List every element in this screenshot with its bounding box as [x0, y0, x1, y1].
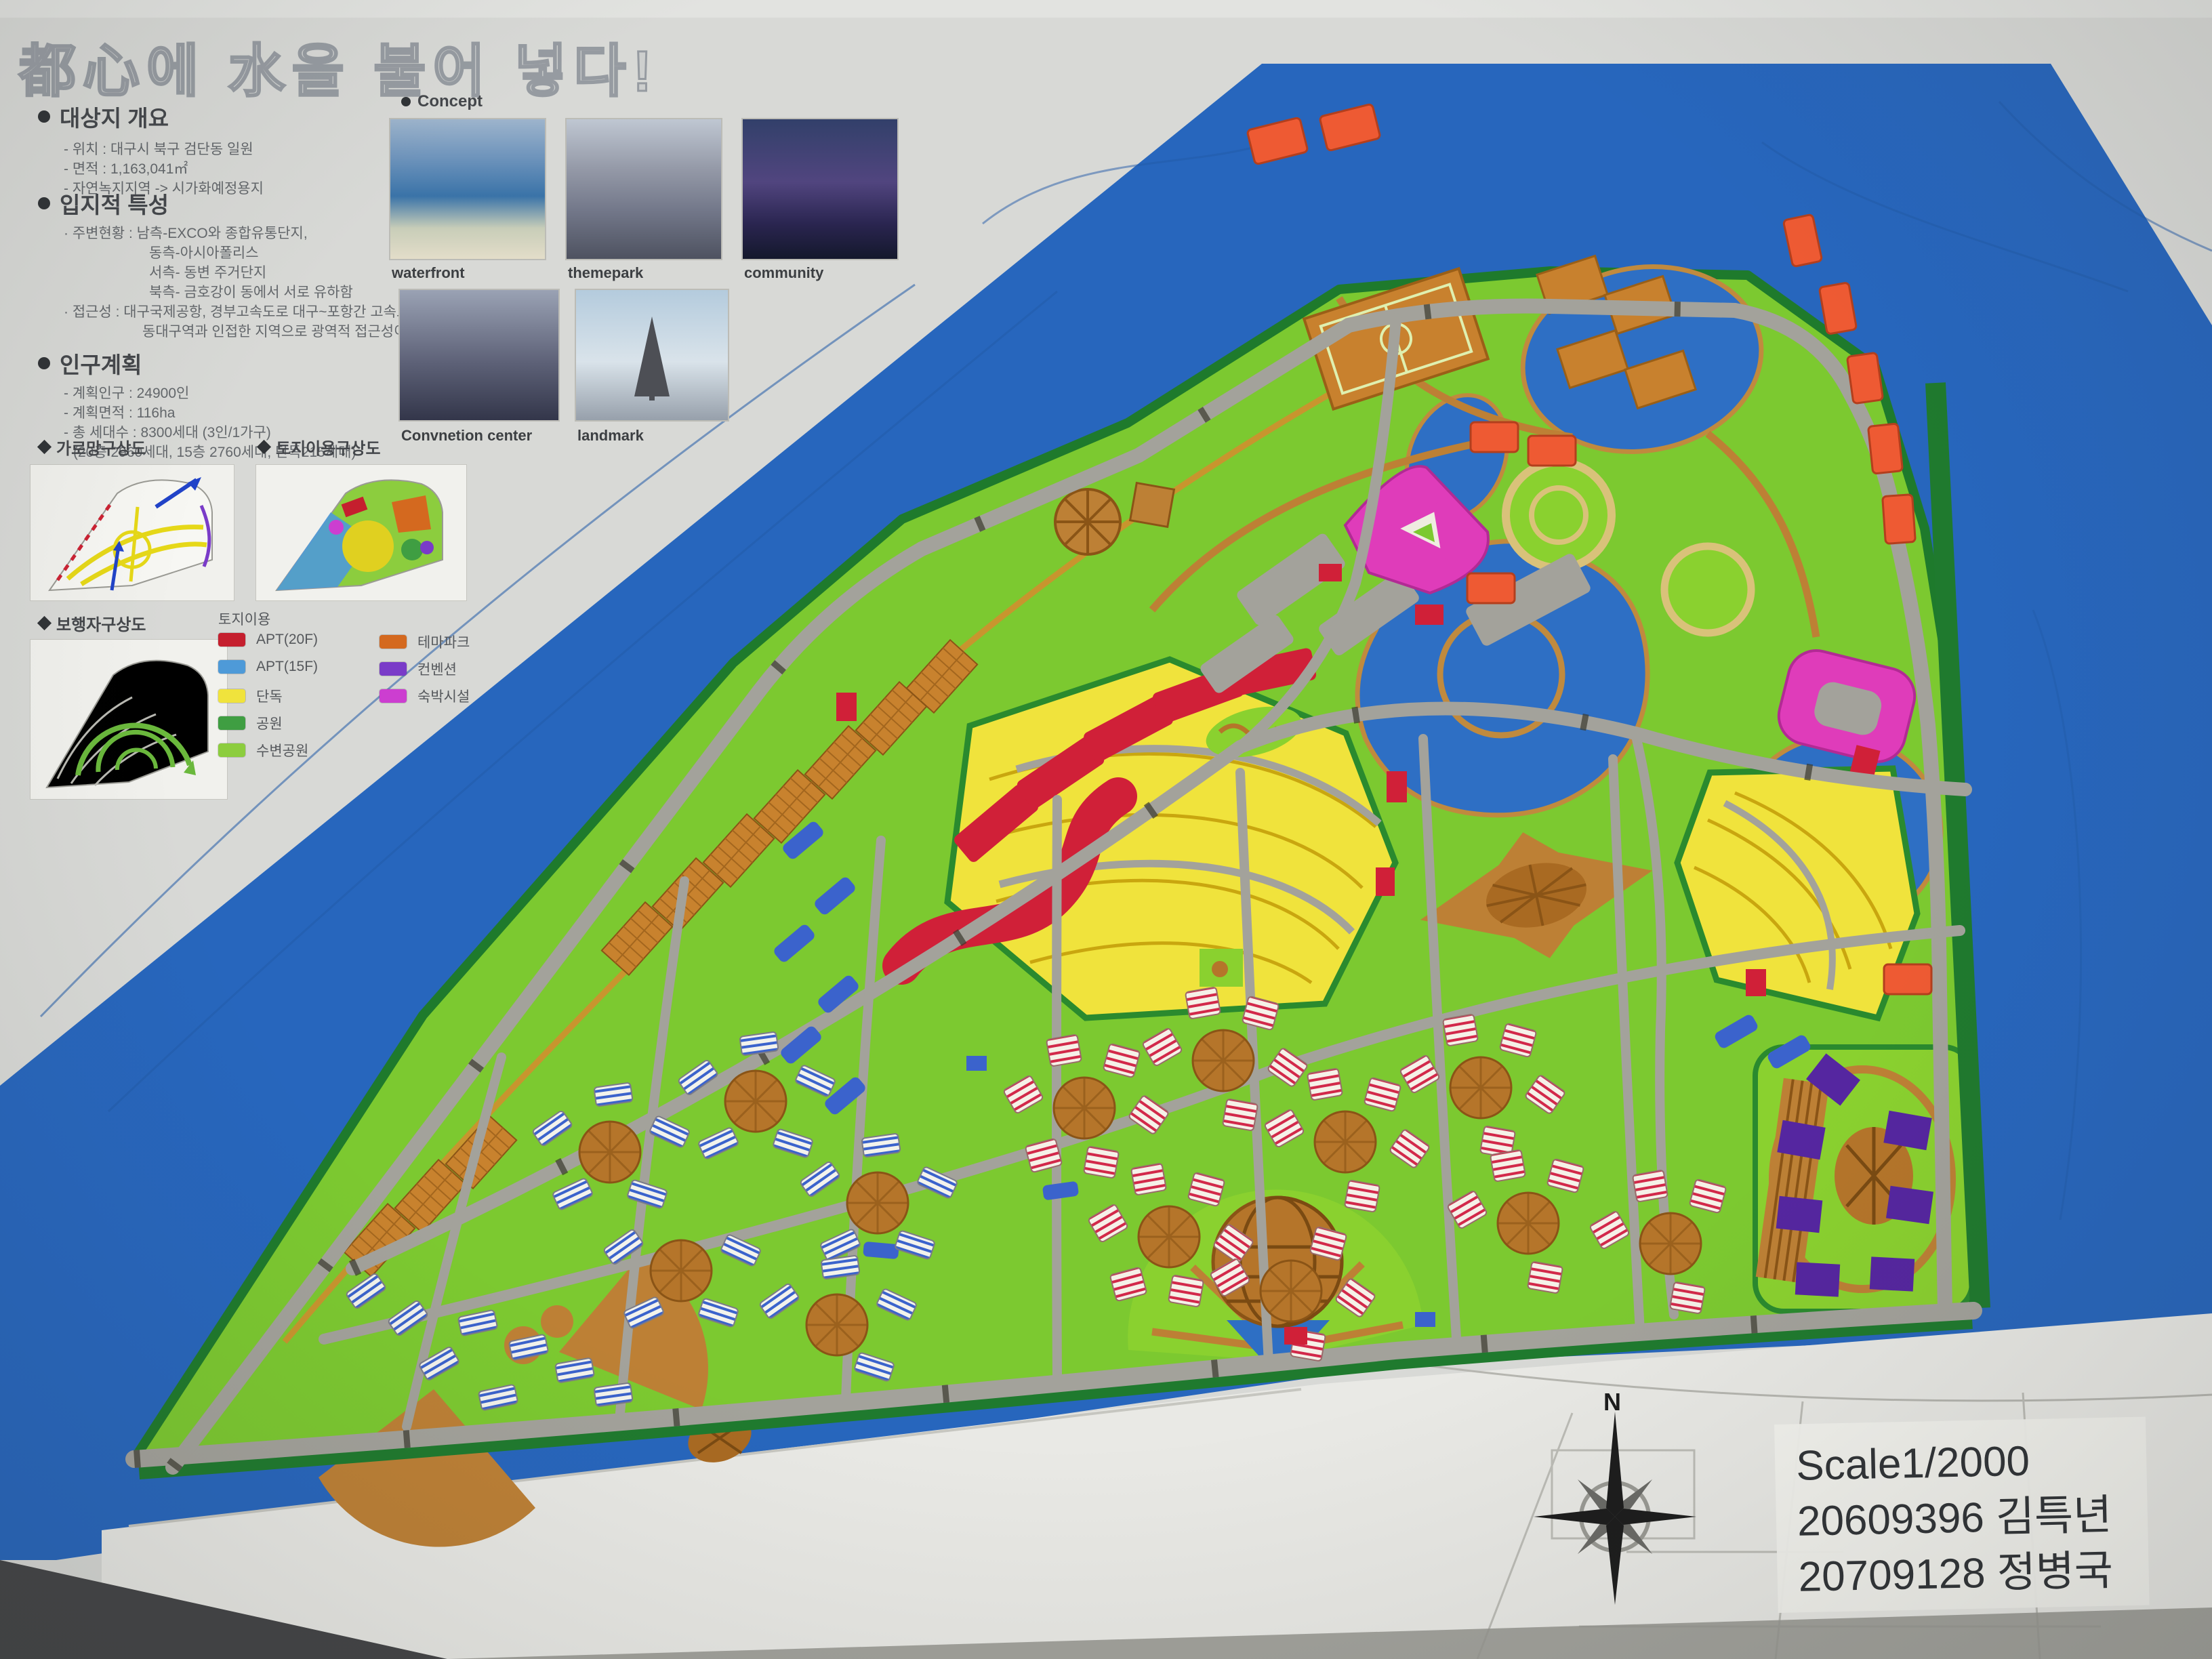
population-item: - 계획인구 : 24900인 [64, 384, 356, 403]
legend-swatch-apt20 [218, 633, 245, 647]
overview-item: - 면적 : 1,163,041㎡ [64, 159, 264, 179]
concept-photo-landmark [576, 290, 728, 420]
section-location-heading: 입지적 특성 [38, 187, 169, 220]
poster-photo: 都心에 水을 불어 넣다! 대상지 개요 - 위치 : 대구시 북구 검단동 일… [0, 0, 2212, 1659]
legend-item-convention: 컨벤션 [380, 659, 457, 679]
population-item: - 계획면적 : 116ha [64, 403, 356, 423]
bullet-icon [38, 357, 50, 369]
concept-label: community [744, 264, 823, 282]
concept-label: themepark [568, 264, 643, 282]
concept-photo-themepark [567, 119, 721, 259]
land-use-diagram [256, 465, 466, 600]
legend-swatch-park [218, 716, 245, 730]
legend-item-lodging: 숙박시설 [380, 686, 470, 706]
bullet-icon [38, 110, 50, 123]
diagram1-heading: 가로망구상도 [39, 435, 146, 459]
legend-heading: 토지이용 [218, 609, 270, 629]
legend-item-park: 공원 [218, 713, 283, 733]
credit-student-2: 20709128 정병국 [1798, 1543, 2114, 1605]
legend-swatch-apt15 [218, 660, 245, 674]
diagram2-heading: 토지이용구상도 [259, 435, 381, 459]
poster-title: 都心에 水을 불어 넣다! [19, 26, 659, 108]
concept-photo-convention [400, 290, 558, 420]
legend-swatch-single [218, 689, 245, 703]
legend-item-waterpark: 수변공원 [218, 740, 308, 760]
diamond-icon [37, 616, 52, 630]
legend-swatch-lodging [380, 689, 407, 703]
legend-item-apt20: APT(20F) [218, 632, 318, 648]
diagram3-heading: 보행자구상도 [39, 611, 146, 635]
concept-label: waterfront [392, 264, 465, 282]
diamond-icon [257, 440, 271, 454]
pedestrian-diagram [30, 640, 227, 799]
legend-swatch-waterpark [218, 743, 245, 757]
legend-item-themepark: 테마파크 [380, 632, 470, 652]
section-population-heading: 인구계획 [38, 347, 142, 380]
legend-swatch-themepark [380, 635, 407, 649]
credit-student-1: 20609396 김특년 [1797, 1488, 2112, 1550]
bullet-icon [38, 197, 50, 209]
concept-photo-community [743, 119, 897, 259]
concept-label: Convnetion center [401, 427, 532, 445]
legend-item-single: 단독 [218, 686, 283, 706]
diamond-icon [37, 440, 52, 454]
compass-north-label: N [1603, 1388, 1621, 1416]
section-overview-heading: 대상지 개요 [38, 100, 169, 133]
eiffel-tower-silhouette [634, 316, 670, 396]
credit-block: Scale1/2000 20609396 김특년 20709128 정병국 [1795, 1432, 2113, 1605]
concept-photo-waterfront [390, 119, 545, 259]
legend-swatch-convention [380, 662, 407, 676]
overview-item: - 위치 : 대구시 북구 검단동 일원 [64, 140, 264, 159]
legend-item-apt15: APT(15F) [218, 659, 318, 675]
concept-label: landmark [577, 427, 644, 445]
map-scale: Scale1/2000 [1795, 1432, 2111, 1494]
road-network-diagram [30, 465, 234, 600]
section-concept-heading: Concept [401, 92, 483, 111]
bullet-icon [401, 97, 411, 106]
